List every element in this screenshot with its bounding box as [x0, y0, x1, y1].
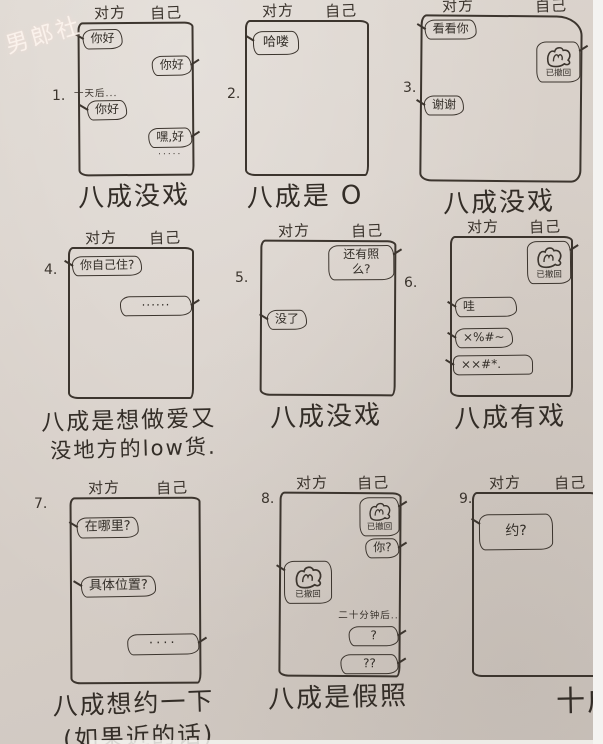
header-label-self: 自己 — [156, 476, 189, 498]
chat-bubble: ? — [349, 626, 399, 646]
panel-caption: 八成没戏 — [443, 181, 556, 221]
chat-bubble: 你好 — [152, 55, 192, 76]
header-label-self: 自己 — [528, 215, 561, 237]
chat-box: 还有照么? 没了 — [260, 240, 397, 397]
photo-bubble: 已撤回 — [359, 497, 399, 536]
header-label-self: 自己 — [149, 226, 182, 248]
photo-bubble: 已撤回 — [527, 241, 571, 284]
chat-window-sketch: 对方 自己 已撤回 你? — [279, 492, 397, 673]
chat-window-sketch: 对方 自己 在哪里? 具体位置? ···· 八成想约一下 (如果近的话) — [70, 497, 197, 680]
time-note: 二十分钟后.. — [338, 607, 399, 621]
header-label-other: 对方 — [466, 215, 499, 237]
panel-number: 3. — [403, 80, 416, 96]
chat-bubble: 你好 — [82, 29, 122, 50]
chat-window-sketch: 对方 自己 看看你 已撤回 谢谢 八成没 — [420, 15, 578, 178]
chat-bubble: 你自己住? — [72, 256, 143, 277]
header-label-self: 自己 — [324, 0, 357, 22]
chat-box: 已撤回 哇 ×%#~ ××#*. — [450, 236, 573, 397]
photo-bubble: 已撤回 — [284, 560, 332, 603]
chat-box: 看看你 已撤回 谢谢 — [419, 14, 582, 182]
recalled-label: 已撤回 — [367, 522, 393, 533]
chat-bubble: ······ — [120, 296, 192, 317]
panel-number: 4. — [44, 262, 57, 278]
panel-number: 9. — [459, 491, 472, 507]
panel-caption: 八成是想做爱又 没地方的low货. — [41, 399, 218, 466]
panel-7: 7. 对方 自己 在哪里? 具体位置? ···· 八成想约一下 (如果近的话) — [0, 480, 201, 744]
header-label-other: 对方 — [93, 1, 126, 23]
photo-bubble: 已撤回 — [536, 41, 580, 82]
photo-doodle-icon — [534, 245, 564, 269]
chat-bubble: 在哪里? — [77, 517, 139, 539]
chat-box: 你好 你好 一天后... 你好 嘿,好 ····· — [77, 22, 194, 177]
recalled-label: 已撤回 — [295, 589, 321, 600]
chat-box: 已撤回 你? 已撤回 二十分钟后.. ? — [278, 492, 401, 678]
chat-bubble: 哇 — [455, 296, 517, 317]
chat-bubble: 没了 — [267, 310, 307, 330]
chat-window-sketch: 对方 自己 还有照么? 没了 八成没戏 — [260, 240, 392, 392]
panel-caption: 八成没戏 — [78, 175, 191, 215]
chat-box: 约? — [472, 492, 599, 677]
panel-9: 9. 对方 自己 约? 十成是SB — [402, 480, 603, 744]
panel-4: 4. 对方 自己 你自己住? ······ 八成是想做爱又 没地方的low货. — [0, 226, 201, 480]
header-label-other: 对方 — [489, 471, 522, 493]
panel-number: 7. — [34, 496, 47, 512]
chat-bubble: 谢谢 — [424, 95, 464, 115]
chat-bubble: 具体位置? — [81, 576, 156, 598]
panel-8: 8. 对方 自己 已撤回 你? — [201, 480, 402, 744]
chat-bubble: 哈喽 — [253, 31, 299, 56]
chat-box: 你自己住? ······ — [68, 247, 194, 399]
chat-bubble: ?? — [340, 654, 398, 674]
panel-6: 6. 对方 自己 已撤回 哇 ×%#~ — [402, 226, 603, 480]
photo-hand-drawn-chat-comic: 男郎社 1. 对方 自己 你好 你好 一天后... 你好 嘿,好 ····· 八… — [0, 0, 603, 744]
recalled-label: 已撤回 — [536, 270, 562, 281]
photo-doodle-icon — [543, 45, 573, 67]
chat-bubble: 约? — [479, 514, 553, 550]
panel-caption: 八成没戏 — [270, 395, 383, 435]
header-label-other: 对方 — [261, 0, 294, 22]
caption-line-2: 没地方的low货. — [42, 430, 218, 466]
photo-doodle-icon — [366, 501, 392, 521]
panel-grid: 1. 对方 自己 你好 你好 一天后... 你好 嘿,好 ····· 八成没戏 — [0, 0, 603, 744]
dots-note: ····· — [158, 150, 182, 160]
chat-window-sketch: 对方 自己 哈喽 八成是 O — [245, 20, 365, 172]
time-note: 一天后... — [74, 85, 118, 99]
panel-2: 2. 对方 自己 哈喽 八成是 O — [201, 0, 402, 226]
chat-bubble: 你? — [365, 538, 399, 558]
header-label-self: 自己 — [150, 1, 183, 23]
chat-bubble: 你好 — [87, 100, 127, 121]
header-label-self: 自己 — [350, 219, 383, 241]
panel-number: 8. — [261, 491, 274, 507]
header-label-other: 对方 — [295, 471, 328, 493]
chat-bubble: 还有照么? — [328, 245, 394, 280]
panel-caption: 八成是 O — [246, 174, 364, 214]
paper-edge-bottom — [90, 740, 603, 744]
panel-number: 6. — [404, 275, 417, 291]
recalled-label: 已撤回 — [546, 68, 572, 79]
header-label-other: 对方 — [278, 219, 311, 241]
header-label-self: 自己 — [356, 471, 389, 493]
chat-box: 在哪里? 具体位置? ···· — [70, 497, 202, 685]
panel-caption: 八成是假照 — [268, 675, 409, 716]
chat-bubble: 看看你 — [425, 20, 477, 40]
header-label-self: 自己 — [554, 471, 587, 493]
header-label-other: 对方 — [87, 476, 120, 498]
chat-box: 哈喽 — [245, 20, 369, 176]
chat-window-sketch: 对方 自己 约? 十成是SB — [472, 492, 595, 673]
header-label-self: 自己 — [535, 0, 568, 17]
panel-caption: 八成有戏 — [453, 396, 566, 436]
panel-number: 5. — [235, 270, 248, 286]
chat-bubble: 嘿,好 — [148, 127, 192, 148]
chat-window-sketch: 对方 自己 你自己住? ······ 八成是想做爱又 没地方的low货. — [68, 247, 190, 395]
panel-number: 1. — [52, 88, 65, 104]
chat-bubble: ···· — [127, 633, 199, 655]
panel-number: 2. — [227, 86, 240, 102]
chat-bubble: ×%#~ — [455, 327, 513, 348]
chat-window-sketch: 对方 自己 你好 你好 一天后... 你好 嘿,好 ····· 八成没戏 — [78, 22, 190, 172]
panel-3: 3. 对方 自己 看看你 已撤回 谢谢 — [402, 0, 603, 226]
chat-bubble: ××#*. — [453, 354, 533, 375]
chat-window-sketch: 对方 自己 已撤回 哇 ×%#~ ××#*. — [450, 236, 569, 393]
panel-caption: 八成想约一下 (如果近的话) — [51, 681, 215, 744]
panel-5: 5. 对方 自己 还有照么? 没了 八成没戏 — [201, 226, 402, 480]
paper-edge-right — [593, 0, 603, 744]
photo-doodle-icon — [291, 564, 325, 588]
header-label-other: 对方 — [85, 226, 118, 248]
